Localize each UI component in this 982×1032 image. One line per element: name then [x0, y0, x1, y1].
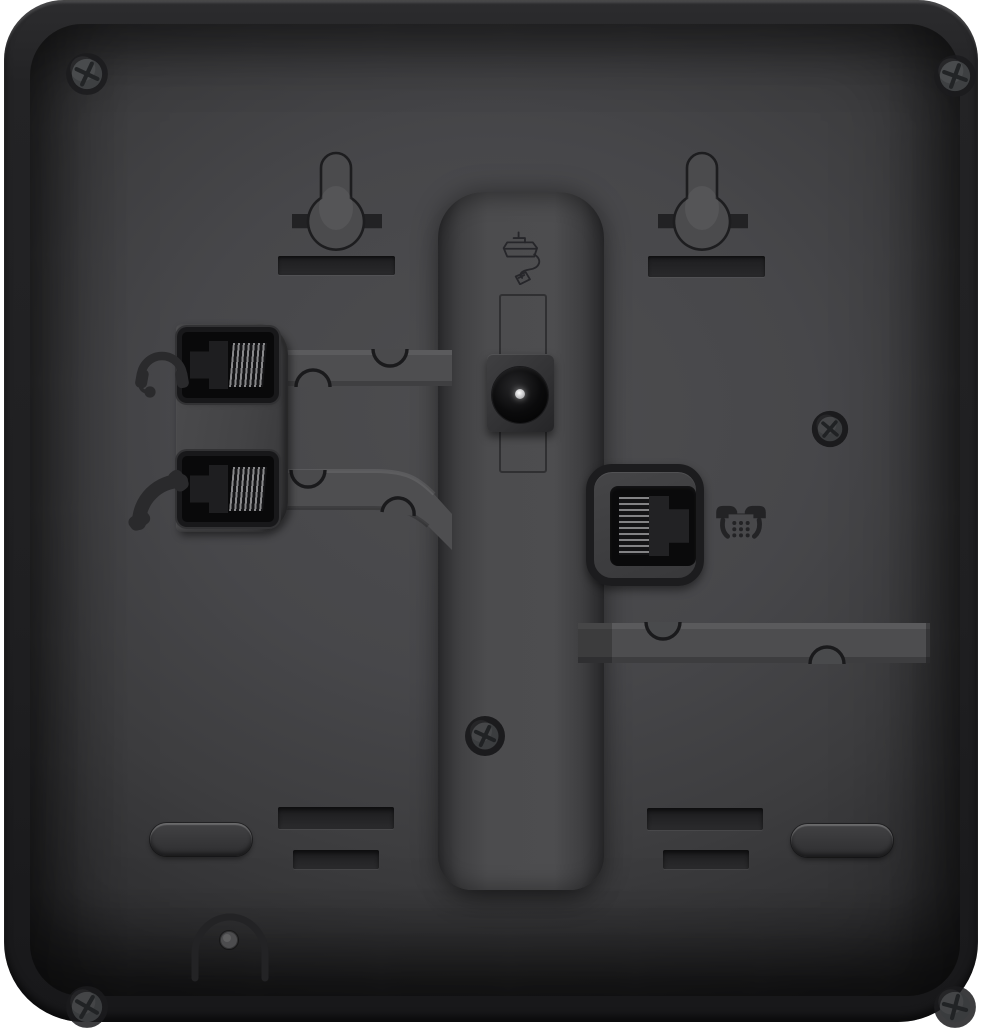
power-adapter-icon: [498, 231, 542, 285]
cable-guide-bottom: [266, 466, 452, 552]
mount-bar-left: [278, 256, 395, 275]
corner-screw-bottom-right: [932, 984, 978, 1030]
cable-guide-right: [578, 614, 936, 672]
stand-slot-right-lower: [663, 850, 749, 869]
dc-center-pin: [515, 389, 525, 399]
line-jack: [610, 486, 696, 566]
cable-guide-top: [266, 344, 452, 392]
back-panel: [30, 24, 960, 996]
rubber-foot-left: [150, 823, 252, 856]
jack-cavity: [190, 341, 228, 389]
headset-jack: [182, 332, 274, 398]
center-screw: [463, 714, 507, 758]
photo-canvas: [0, 0, 982, 1032]
corner-screw-bottom-left: [64, 984, 110, 1030]
cable-anchor: [180, 894, 280, 986]
stand-slot-right-upper: [647, 808, 763, 830]
jack-pins: [619, 497, 651, 555]
telephone-icon: [714, 502, 768, 544]
stand-slot-left-upper: [278, 807, 394, 829]
mount-bar-right: [648, 256, 765, 277]
corner-screw-top-left: [64, 51, 110, 97]
wall-mount-keyhole-right: [666, 148, 738, 252]
dc-power-jack: [487, 354, 554, 432]
jack-pins: [229, 343, 267, 387]
side-screw: [810, 409, 850, 449]
headset-icon: [132, 340, 192, 398]
wall-mount-keyhole-left: [300, 148, 372, 252]
phone-rear-body: [4, 0, 978, 1022]
jack-cavity: [649, 496, 689, 556]
handset-icon: [126, 468, 196, 536]
jack-pins: [229, 467, 267, 511]
stand-slot-left-lower: [293, 850, 379, 869]
dc-barrel-opening: [492, 367, 548, 423]
line-jack-bezel: [586, 464, 704, 586]
corner-screw-top-right: [932, 53, 978, 99]
rubber-foot-right: [791, 824, 893, 857]
